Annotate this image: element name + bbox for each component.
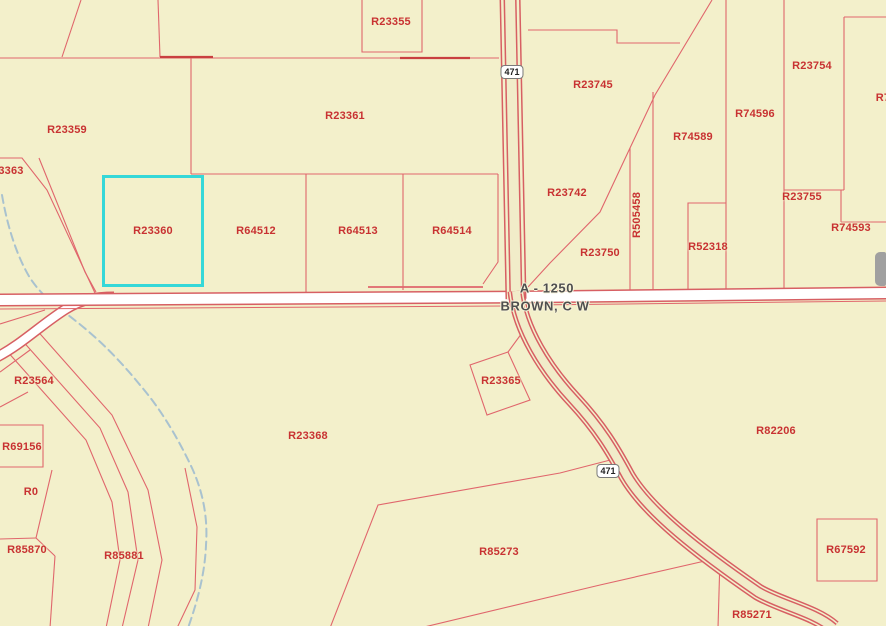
road-name-line1: A - 1250	[520, 281, 574, 296]
map-lines	[0, 0, 886, 626]
parcel-label: R85870	[7, 544, 47, 556]
parcel-label: 3363	[0, 165, 24, 177]
parcel-label: R23742	[547, 187, 587, 199]
scrollbar-thumb[interactable]	[875, 252, 886, 286]
parcel-label: R67592	[826, 544, 866, 556]
parcel-label: R74596	[735, 108, 775, 120]
highway-shield: 471	[596, 464, 619, 478]
parcel-label: R23745	[573, 79, 613, 91]
parcel-label: R64512	[236, 225, 276, 237]
parcel-boundary-lines	[0, 0, 886, 626]
parcel-label: R85881	[104, 550, 144, 562]
parcel-label: R23368	[288, 430, 328, 442]
parcel-label: R0	[24, 486, 38, 498]
parcel-label: R52318	[688, 241, 728, 253]
parcel-label: R85273	[479, 546, 519, 558]
road-471-south	[516, 291, 833, 626]
parcel-label: R23355	[371, 16, 411, 28]
parcel-label: R23750	[580, 247, 620, 259]
parcel-label: R23754	[792, 60, 832, 72]
road-471-north	[510, 0, 516, 299]
parcel-label: R64513	[338, 225, 378, 237]
parcel-label: R505458	[631, 192, 643, 238]
parcel-label: R69156	[2, 441, 42, 453]
map-canvas[interactable]: R23355 R23359 3363 R23361 R23745 R23754 …	[0, 0, 886, 626]
highway-shield: 471	[500, 65, 523, 79]
parcel-label: R23359	[47, 124, 87, 136]
parcel-label: R64514	[432, 225, 472, 237]
parcel-label: R85271	[732, 609, 772, 621]
parcel-label: R74593	[831, 222, 871, 234]
parcel-label: R23361	[325, 110, 365, 122]
road-name-line2: BROWN, C W	[500, 299, 589, 314]
parcel-label: R23360	[133, 225, 173, 237]
parcel-label: R23755	[782, 191, 822, 203]
parcel-label: R23564	[14, 375, 54, 387]
parcel-label: R74589	[673, 131, 713, 143]
parcel-label: R7	[876, 92, 886, 104]
parcel-label: R82206	[756, 425, 796, 437]
road-brown-cw	[0, 293, 886, 309]
parcel-label: R23365	[481, 375, 521, 387]
